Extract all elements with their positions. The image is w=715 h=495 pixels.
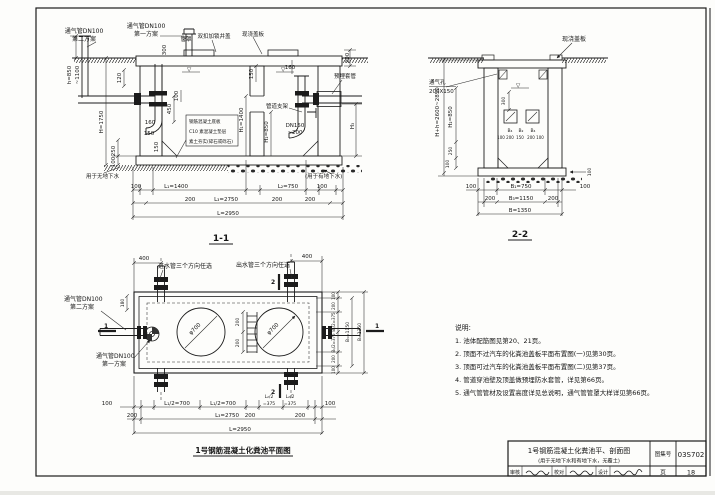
manhole-cover-left xyxy=(184,50,214,56)
dim-label: 100 xyxy=(580,184,591,190)
atlas-number-label: 图集号 xyxy=(655,450,672,458)
flow-opening-diag xyxy=(506,112,515,121)
slab-note: 素土夯实(碎石或砾石) xyxy=(189,138,233,145)
dim-label: 200 xyxy=(295,413,306,419)
section-mark-2: 2 xyxy=(271,279,275,286)
dim-label: L₂/2 xyxy=(265,394,274,400)
dim-label: 180 xyxy=(120,299,126,308)
dim-label: 200 xyxy=(485,196,496,202)
dim-label: 100 xyxy=(111,156,117,167)
reviewer-label: 审核 xyxy=(510,469,520,476)
pipe-flange xyxy=(137,326,141,339)
left-dim-lines xyxy=(70,34,140,167)
vent-option1-label: 通气管DN100 xyxy=(127,22,166,30)
dim-label: H₂=850 xyxy=(448,106,454,128)
section-2-2-title: 2-2 xyxy=(512,230,528,240)
dim-label: 100 xyxy=(131,184,142,190)
pipe-flange xyxy=(284,372,298,377)
dim-label: L=2950 xyxy=(217,211,239,217)
dim-label: 200 xyxy=(548,196,559,202)
dim-label: B₁/2=375 xyxy=(331,312,336,332)
dim-label: 400 xyxy=(302,254,313,260)
gravel-bed xyxy=(486,176,582,183)
dim-label: 100 xyxy=(174,90,180,101)
dim-label: H=1750 xyxy=(99,110,105,133)
pipe-cap-label: 管罩 xyxy=(180,35,192,43)
ground-hatch xyxy=(562,58,606,63)
dim-label: L₁/2=700 xyxy=(164,401,190,407)
haunches xyxy=(498,158,548,168)
dim-label: 160 xyxy=(145,120,156,126)
pipe-fitting xyxy=(134,93,141,105)
pipe-fitting xyxy=(295,103,309,108)
dim-label: B₄ xyxy=(531,128,536,134)
dim-label: 100 xyxy=(102,401,113,407)
section-mark-2-line xyxy=(279,274,280,398)
pipe-fitting xyxy=(295,91,309,96)
pipe-fitting xyxy=(149,102,167,107)
vent-option1-label: 第一方案 xyxy=(102,360,126,368)
wall-outer-line xyxy=(139,297,317,369)
vent-hole-diag xyxy=(499,70,507,79)
dim-label: ~1100 xyxy=(75,65,81,84)
pipe-flange xyxy=(322,326,326,339)
leader-lines xyxy=(446,43,572,87)
dim-label: B₁=750 xyxy=(510,184,532,190)
bottom-slab xyxy=(478,168,566,176)
dim-label: H+h=2600~2850 xyxy=(435,87,441,137)
dim-label: H₁=1400 xyxy=(239,107,245,132)
dim-label: 250 xyxy=(448,147,454,156)
pipe-flange xyxy=(154,277,168,282)
dim-label: L₁/2=700 xyxy=(210,401,236,407)
dim-label: 300 xyxy=(162,44,168,55)
no-groundwater-note: 用于无地下水 xyxy=(86,172,120,180)
inlet-label: 进水管三个方向任选 xyxy=(158,262,212,270)
top-slab xyxy=(136,56,342,66)
dim-label: 200 xyxy=(331,355,336,363)
dim-label: 250 xyxy=(111,145,117,156)
cast-slab-label: 现浇盖板 xyxy=(562,35,586,43)
plan-view: φ700 φ700 200 200 1 1 2 2 400 400 xyxy=(64,254,384,456)
dim-label: L₃=2750 xyxy=(215,413,239,419)
vent-hole-label: 200X150 xyxy=(429,89,454,95)
manhole-cover-label: 双扣加锁井盖 xyxy=(197,32,231,40)
dim-label: 200 xyxy=(527,135,535,140)
atlas-number: 03S702 xyxy=(678,451,705,459)
wall-sleeve xyxy=(317,92,341,107)
dim-label: 200 xyxy=(345,52,351,63)
title-block: 1号钢筋混凝土化粪池平、剖面图 (用于无地下水和有地下水，无覆土) 图集号 03… xyxy=(508,441,706,477)
left-wall xyxy=(484,68,498,168)
vent-option2-label: 通气管DN100 xyxy=(65,27,104,35)
diameter-label: φ700 xyxy=(188,322,203,337)
ground-hatch xyxy=(430,58,484,63)
checker-label: 校对 xyxy=(554,469,564,476)
dim-label: =375 xyxy=(263,401,275,407)
dim-label: 200 xyxy=(272,197,283,203)
dim-label: 150 xyxy=(516,135,524,140)
tank-outline xyxy=(134,292,322,373)
flow-opening-diag xyxy=(528,112,537,121)
designer-label: 设计 xyxy=(598,469,608,476)
gravel-bed xyxy=(228,165,362,173)
cast-slab-label: 现浇盖板 xyxy=(242,30,265,38)
sleeve-label: 预埋套管 xyxy=(334,72,357,80)
pipe-flange xyxy=(154,285,168,290)
note-item: 5. 通气管管材及设置高度详见总说明，通气管管罩大样详见第66页。 xyxy=(455,388,654,397)
slab-note: C10 素混凝土垫层 xyxy=(189,128,227,135)
notes-heading: 说明: xyxy=(455,323,471,332)
section-mark-1: 1 xyxy=(104,323,108,330)
signature-scribbles xyxy=(526,470,642,476)
note-item: 4. 管道穿池壁及顶盖做预埋防水套管，详见第66页。 xyxy=(455,375,608,384)
dn-label: DN150 xyxy=(286,123,305,129)
dim-label: 100 xyxy=(317,184,328,190)
vent-option2-label: 第二方案 xyxy=(70,303,94,311)
pipe-flange xyxy=(154,382,168,387)
dim-label: L₂/2 xyxy=(286,394,295,400)
dim-label: 150 xyxy=(144,131,155,137)
dim-label: 160 xyxy=(285,65,296,71)
section-mark-1: 1 xyxy=(375,323,379,330)
dim-label: H₃ xyxy=(350,123,356,129)
dim-label: 100 xyxy=(466,184,477,190)
vent-hole-label: 通气孔 xyxy=(429,78,446,86)
signature-cell-lines xyxy=(522,466,610,476)
dim-label: 150 xyxy=(249,68,255,79)
pipe-fitting xyxy=(149,91,167,96)
dim-label: 200 xyxy=(506,135,514,140)
dim-label: 200 xyxy=(305,197,316,203)
dim-label: 100 xyxy=(331,366,336,374)
dim-label: =375 xyxy=(284,401,296,407)
sheet-title: 1号钢筋混凝土化粪池平、剖面图 xyxy=(528,446,630,455)
right-wall xyxy=(548,68,562,168)
bottom-slab xyxy=(136,156,342,165)
section-2-2-view: ▽ 通气孔 200X150 现浇盖板 H+h=2600~2850 H₂=850 … xyxy=(428,35,608,240)
dim-label: 200 xyxy=(185,197,196,203)
vent-option1-label: 通气管DN100 xyxy=(96,352,135,360)
sheet-subtitle: (用于无地下水和有地下水，无覆土) xyxy=(538,457,620,465)
top-slab xyxy=(478,60,566,68)
dim-label: 200 xyxy=(235,339,241,348)
drawing-canvas: ▽ ▽ 通气管DN100 第二方案 通气管DN100 第一方案 管罩 双扣加锁井… xyxy=(0,0,715,491)
rammed-earth xyxy=(104,165,228,171)
dim-label: 400 xyxy=(139,256,150,262)
dim-label: 450 xyxy=(167,103,173,114)
dim-label: h=850 xyxy=(67,65,73,84)
dim-label: L=2950 xyxy=(229,427,251,433)
manhole-cover-right xyxy=(268,50,298,56)
dim-label: 100 xyxy=(536,135,544,140)
page-label: 页 xyxy=(660,470,666,477)
wall-inner-dashed xyxy=(147,303,309,362)
dim-label: L₁=1400 xyxy=(164,184,188,190)
ladder-dim-line xyxy=(241,310,245,354)
dim-label: 100 xyxy=(497,135,505,140)
dim-label: 100 xyxy=(331,292,336,300)
dim-label: 150 xyxy=(154,141,160,152)
dim-label: B=1350 xyxy=(509,208,532,214)
dim-label: B₂ xyxy=(519,128,524,134)
dim-label: 120 xyxy=(117,72,123,83)
diameter-label: φ700 xyxy=(266,322,281,337)
dim-label: B₃=1150 xyxy=(509,196,534,202)
dim-label: 100 xyxy=(325,401,336,407)
pipe-flange xyxy=(284,380,298,385)
pipe-flange xyxy=(154,374,168,379)
cover-plate xyxy=(550,55,562,60)
pipe-flange xyxy=(143,326,147,339)
dim-label: 200 xyxy=(331,302,336,310)
sheet-border xyxy=(36,8,706,476)
dim-label: H₂=850 xyxy=(264,121,270,143)
note-item: 1. 池体配筋图见第20、21页。 xyxy=(455,336,545,345)
dn-label: ~200 xyxy=(287,130,303,136)
dim-label: L₂=750 xyxy=(278,184,299,190)
dim-label: B=1350 xyxy=(357,323,363,341)
dim-label: 100 xyxy=(587,168,593,177)
dim-label: 300 xyxy=(501,97,507,106)
plan-title: 1号钢筋混凝土化粪池平面图 xyxy=(195,445,291,455)
notes-block: 说明: 1. 池体配筋图见第20、21页。 2. 顶面不过汽车的化粪池盖板平面布… xyxy=(455,323,654,397)
section-1-1-view: ▽ ▽ 通气管DN100 第二方案 通气管DN100 第一方案 管罩 双扣加锁井… xyxy=(65,22,368,244)
vent-option2-label: 通气管DN100 xyxy=(64,295,103,303)
pipe-fitting xyxy=(313,93,319,105)
ladder xyxy=(247,312,257,353)
dim-label: 200 xyxy=(127,413,138,419)
dim-label: B₄ xyxy=(508,128,513,134)
pipe-support-label: 管道支架 xyxy=(266,102,289,110)
vent-option1-label: 第一方案 xyxy=(134,30,158,38)
vent-hole-diag xyxy=(539,70,547,79)
dim-label: 200 xyxy=(245,413,256,419)
note-item: 2. 顶面不过汽车的化粪池盖板平面布置图(一)见第30页。 xyxy=(455,349,620,358)
slab-note: 钢筋混凝土底板 xyxy=(189,118,221,125)
dim-label: L₃=2750 xyxy=(214,197,238,203)
vent-option2-label: 第二方案 xyxy=(72,35,96,43)
dim-label: 100 xyxy=(445,160,451,169)
dim-label: B₁/2=375 xyxy=(331,333,336,353)
outlet-label: 出水管三个方向任选 xyxy=(236,261,290,269)
page-number: 18 xyxy=(687,469,695,477)
section-1-1-title: 1-1 xyxy=(213,234,229,244)
haunches xyxy=(162,141,318,156)
dim-label: B₃=1150 xyxy=(345,322,351,342)
groundwater-note: (用于有地下水) xyxy=(305,172,342,180)
note-item: 3. 顶面可过汽车的化粪池盖板平面布置图(二)见第37页。 xyxy=(455,362,620,371)
dim-label: 200 xyxy=(235,318,241,327)
partition-opening xyxy=(249,96,265,112)
pipe-flange xyxy=(284,282,298,287)
drawing-sheet: ▽ ▽ 通气管DN100 第二方案 通气管DN100 第一方案 管罩 双扣加锁井… xyxy=(0,0,715,491)
